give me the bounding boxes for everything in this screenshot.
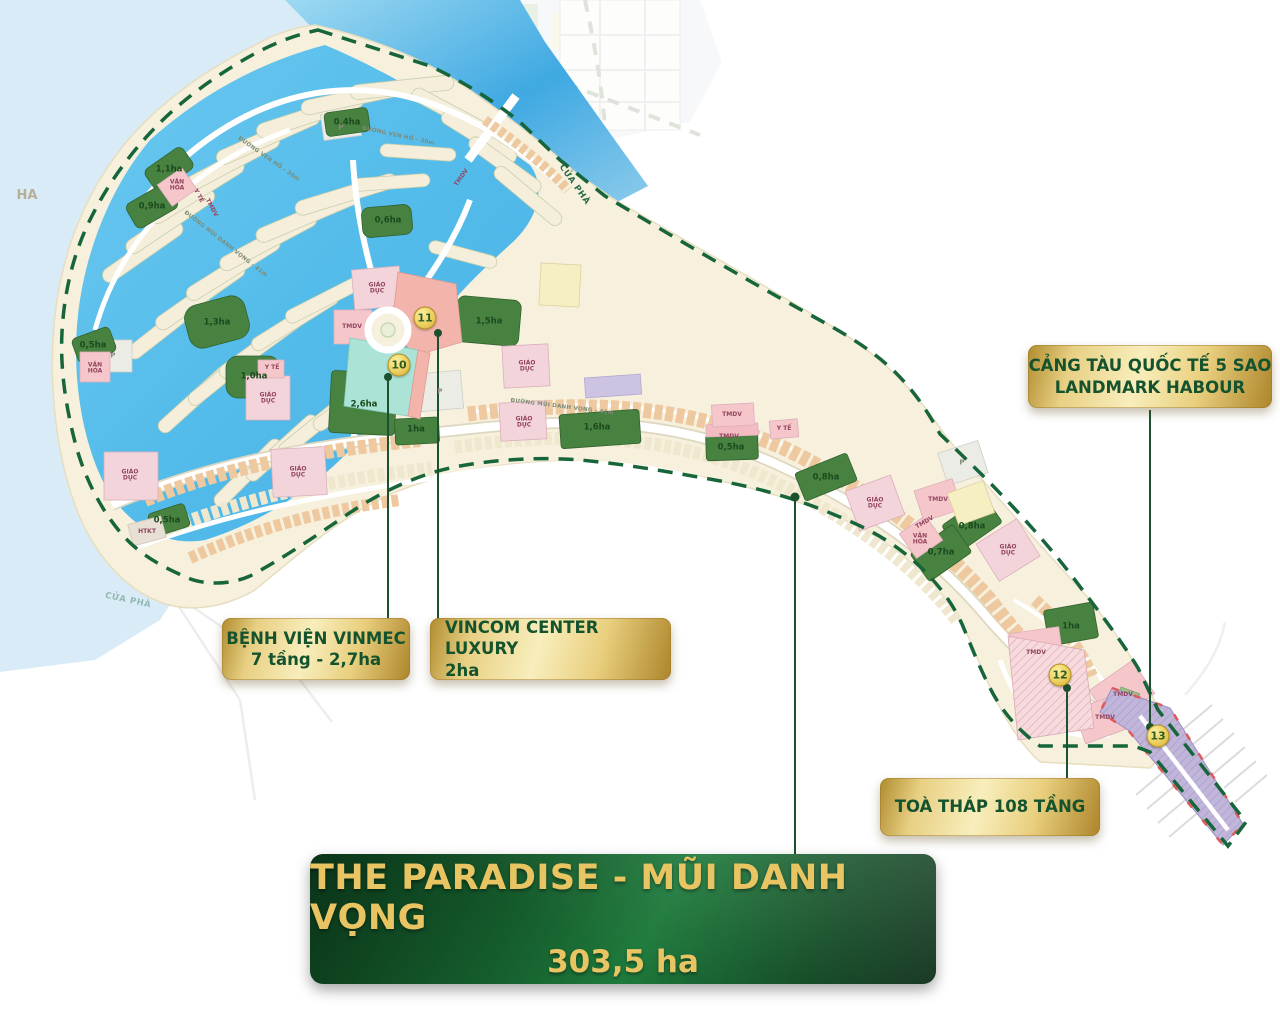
callout-port: CẢNG TÀU QUỐC TẾ 5 SAO LANDMARK HABOUR xyxy=(1028,345,1272,408)
callout-tower: TOÀ THÁP 108 TẦNG xyxy=(880,778,1100,836)
callout-hospital-line1: BỆNH VIỆN VINMEC xyxy=(226,628,405,649)
callout-vincom-line2: 2ha xyxy=(445,660,479,681)
callout-port-line1: CẢNG TÀU QUỐC TẾ 5 SAO xyxy=(1029,355,1272,376)
project-title: THE PARADISE - MŨI DANH VỌNG xyxy=(310,858,936,938)
project-title-banner: THE PARADISE - MŨI DANH VỌNG 303,5 ha xyxy=(310,854,936,984)
callout-tower-line1: TOÀ THÁP 108 TẦNG xyxy=(895,796,1086,817)
project-area: 303,5 ha xyxy=(547,944,699,980)
parcel-12 xyxy=(1008,636,1094,740)
callout-hospital: BỆNH VIỆN VINMEC 7 tầng - 2,7ha xyxy=(222,618,410,680)
callout-port-line2: LANDMARK HABOUR xyxy=(1055,377,1246,398)
callout-hospital-line2: 7 tầng - 2,7ha xyxy=(251,649,381,670)
callout-vincom-line1: VINCOM CENTER LUXURY xyxy=(445,617,671,660)
master-plan-poster: 1,1ha0,9ha0,4ha0,6ha1,3ha1,5ha2,6ha1,0ha… xyxy=(0,0,1280,1009)
roundabout xyxy=(368,310,408,350)
callout-vincom: VINCOM CENTER LUXURY 2ha xyxy=(430,618,671,680)
